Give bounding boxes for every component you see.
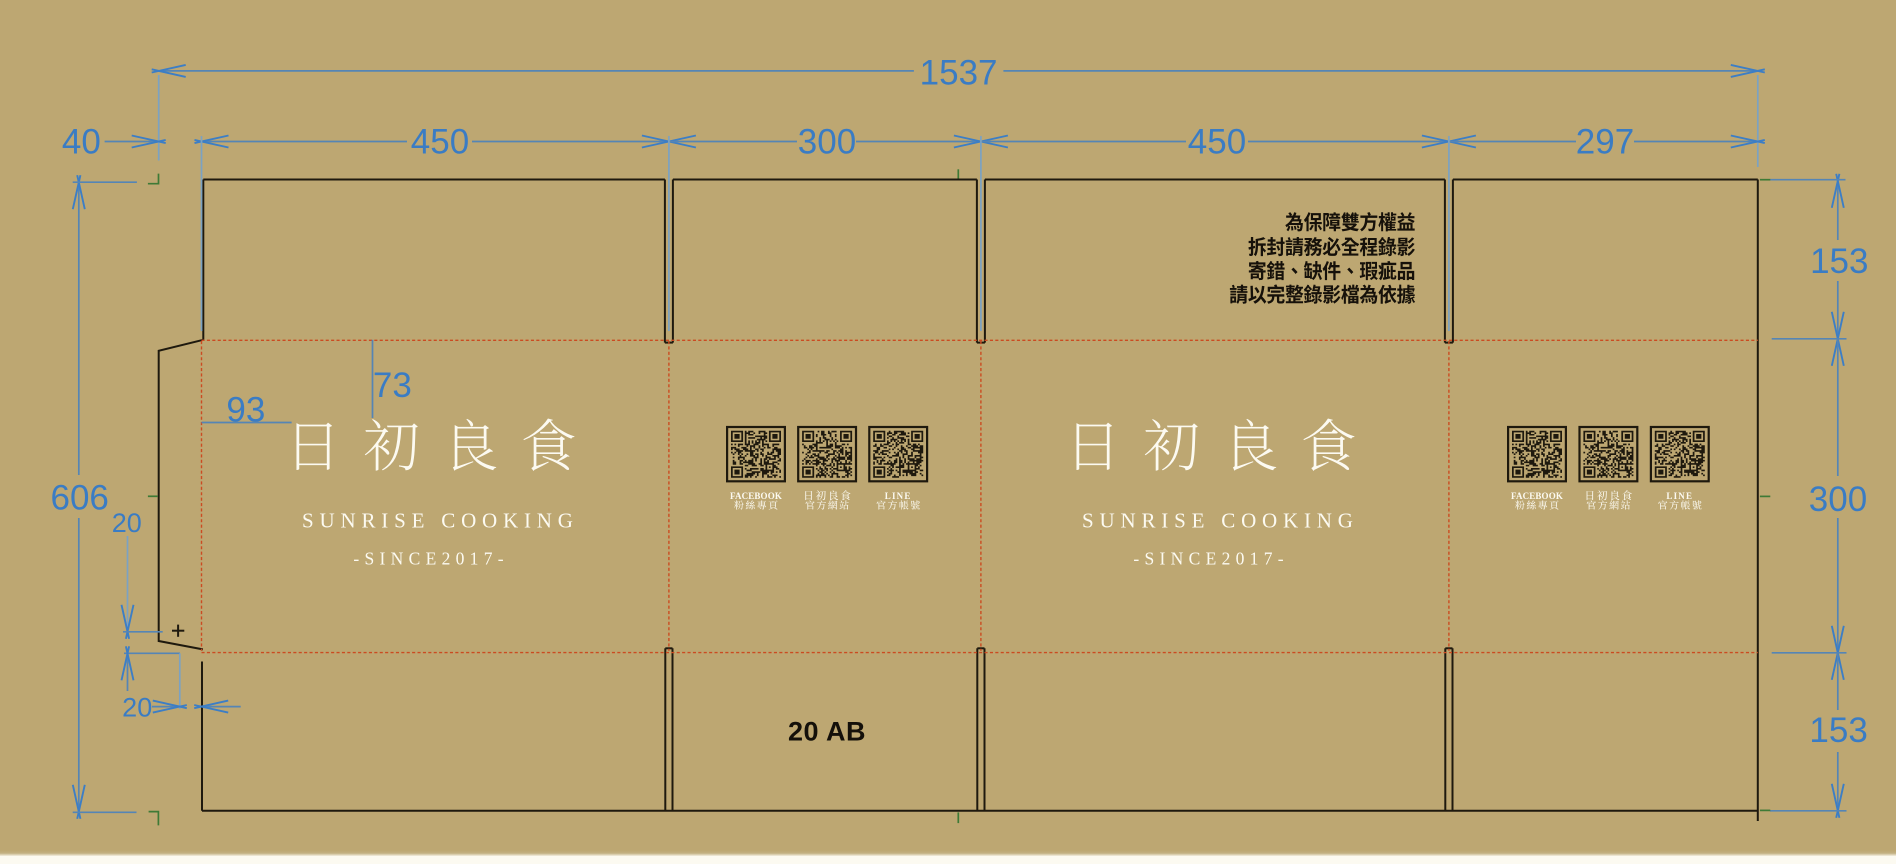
svg-text:20 AB: 20 AB xyxy=(788,717,866,747)
svg-text:93: 93 xyxy=(226,391,265,430)
svg-text:FACEBOOK: FACEBOOK xyxy=(1511,491,1563,501)
svg-text:LINE: LINE xyxy=(1666,491,1693,501)
svg-text:LINE: LINE xyxy=(885,491,912,501)
svg-text:153: 153 xyxy=(1810,242,1868,281)
svg-text:SUNRISE COOKING: SUNRISE COOKING xyxy=(302,508,579,532)
svg-text:-SINCE2017-: -SINCE2017- xyxy=(353,548,509,568)
svg-text:SUNRISE COOKING: SUNRISE COOKING xyxy=(1082,508,1359,532)
svg-text:450: 450 xyxy=(411,122,469,161)
svg-text:1537: 1537 xyxy=(920,53,998,92)
svg-text:73: 73 xyxy=(373,366,412,405)
svg-text:450: 450 xyxy=(1188,122,1246,161)
svg-text:300: 300 xyxy=(798,122,856,161)
svg-text:606: 606 xyxy=(50,478,108,517)
svg-text:-SINCE2017-: -SINCE2017- xyxy=(1133,548,1289,568)
svg-text:20: 20 xyxy=(112,508,142,538)
svg-text:40: 40 xyxy=(62,122,101,161)
svg-text:20: 20 xyxy=(122,692,152,722)
svg-text:153: 153 xyxy=(1809,711,1867,750)
svg-text:300: 300 xyxy=(1809,480,1867,519)
svg-text:297: 297 xyxy=(1576,122,1634,161)
svg-text:FACEBOOK: FACEBOOK xyxy=(730,491,782,501)
